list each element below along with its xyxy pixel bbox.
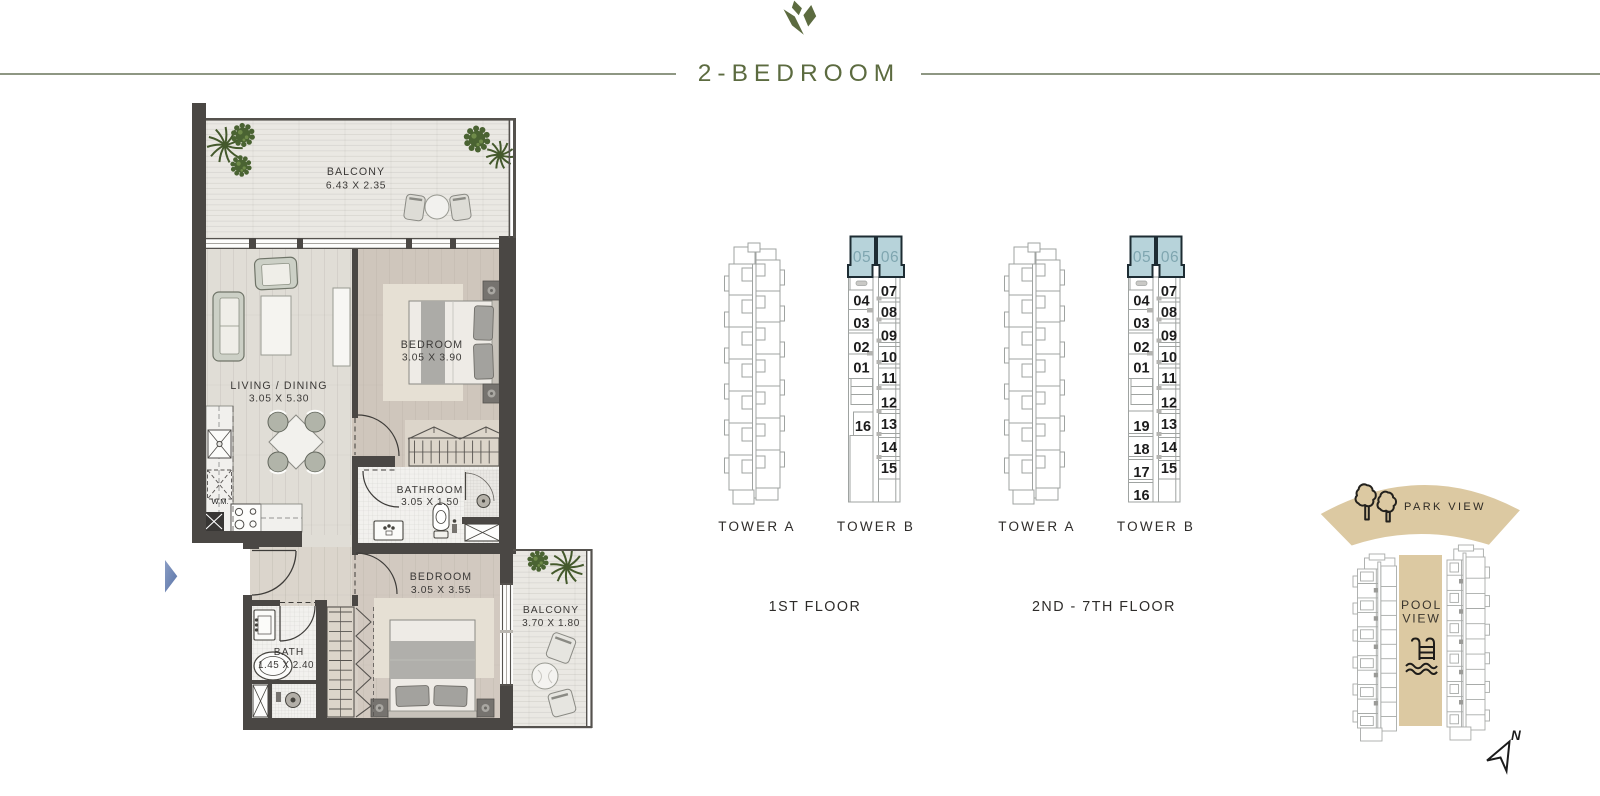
svg-text:2ND - 7TH FLOOR: 2ND - 7TH FLOOR (1032, 599, 1176, 615)
svg-text:07: 07 (1161, 284, 1177, 300)
svg-text:BATH: BATH (274, 647, 304, 658)
svg-text:09: 09 (1161, 329, 1177, 345)
svg-text:LIVING / DINING: LIVING / DINING (230, 380, 327, 392)
svg-text:06: 06 (881, 249, 899, 266)
svg-text:TOWER A: TOWER A (718, 519, 795, 534)
svg-text:13: 13 (1161, 417, 1177, 433)
svg-text:W.M.: W.M. (211, 497, 228, 506)
svg-text:03: 03 (1133, 316, 1149, 332)
svg-text:14: 14 (881, 440, 897, 456)
svg-text:13: 13 (881, 417, 897, 433)
svg-text:TOWER B: TOWER B (837, 519, 915, 534)
svg-text:08: 08 (881, 305, 897, 321)
svg-text:6.43 X 2.35: 6.43 X 2.35 (326, 181, 386, 192)
svg-text:BEDROOM: BEDROOM (401, 339, 463, 351)
svg-text:POOL: POOL (1401, 598, 1442, 612)
svg-text:BEDROOM: BEDROOM (410, 571, 472, 583)
svg-text:14: 14 (1161, 440, 1177, 456)
svg-text:04: 04 (1133, 294, 1149, 310)
svg-text:3.05 X 3.55: 3.05 X 3.55 (411, 585, 471, 596)
svg-text:05: 05 (1133, 249, 1151, 266)
svg-text:3.05 X 3.90: 3.05 X 3.90 (402, 353, 462, 364)
svg-text:11: 11 (881, 371, 896, 387)
svg-text:07: 07 (881, 284, 897, 300)
svg-text:PARK VIEW: PARK VIEW (1404, 501, 1486, 513)
svg-text:3.70 X 1.80: 3.70 X 1.80 (522, 618, 580, 629)
svg-text:BALCONY: BALCONY (327, 166, 385, 178)
svg-text:01: 01 (1133, 361, 1149, 377)
svg-text:3.05 X 5.30: 3.05 X 5.30 (249, 394, 309, 405)
svg-text:15: 15 (881, 461, 897, 477)
svg-text:12: 12 (1161, 396, 1177, 412)
svg-text:16: 16 (1133, 488, 1149, 504)
svg-text:10: 10 (881, 350, 897, 366)
svg-text:05: 05 (853, 249, 871, 266)
svg-text:11: 11 (1161, 371, 1176, 387)
svg-text:1.45 X 2.40: 1.45 X 2.40 (258, 660, 314, 671)
svg-text:03: 03 (853, 316, 869, 332)
svg-text:01: 01 (853, 361, 869, 377)
svg-text:VIEW: VIEW (1402, 612, 1440, 626)
svg-text:BATHROOM: BATHROOM (397, 485, 464, 496)
svg-text:1ST FLOOR: 1ST FLOOR (769, 599, 862, 615)
svg-text:BALCONY: BALCONY (523, 605, 579, 616)
svg-text:TOWER A: TOWER A (998, 519, 1075, 534)
svg-text:16: 16 (855, 419, 871, 435)
svg-text:04: 04 (853, 294, 869, 310)
svg-text:02: 02 (853, 340, 869, 356)
svg-text:3.05 X 1.50: 3.05 X 1.50 (401, 497, 459, 508)
svg-text:08: 08 (1161, 305, 1177, 321)
svg-text:12: 12 (881, 396, 897, 412)
svg-text:09: 09 (881, 329, 897, 345)
svg-text:TOWER B: TOWER B (1117, 519, 1195, 534)
svg-text:2-BEDROOM: 2-BEDROOM (698, 60, 900, 87)
svg-text:19: 19 (1133, 419, 1149, 435)
svg-text:10: 10 (1161, 350, 1177, 366)
svg-text:18: 18 (1133, 442, 1149, 458)
svg-text:N: N (1511, 728, 1521, 743)
svg-text:15: 15 (1161, 461, 1177, 477)
svg-text:06: 06 (1161, 249, 1179, 266)
svg-text:17: 17 (1133, 465, 1149, 481)
svg-text:02: 02 (1133, 340, 1149, 356)
